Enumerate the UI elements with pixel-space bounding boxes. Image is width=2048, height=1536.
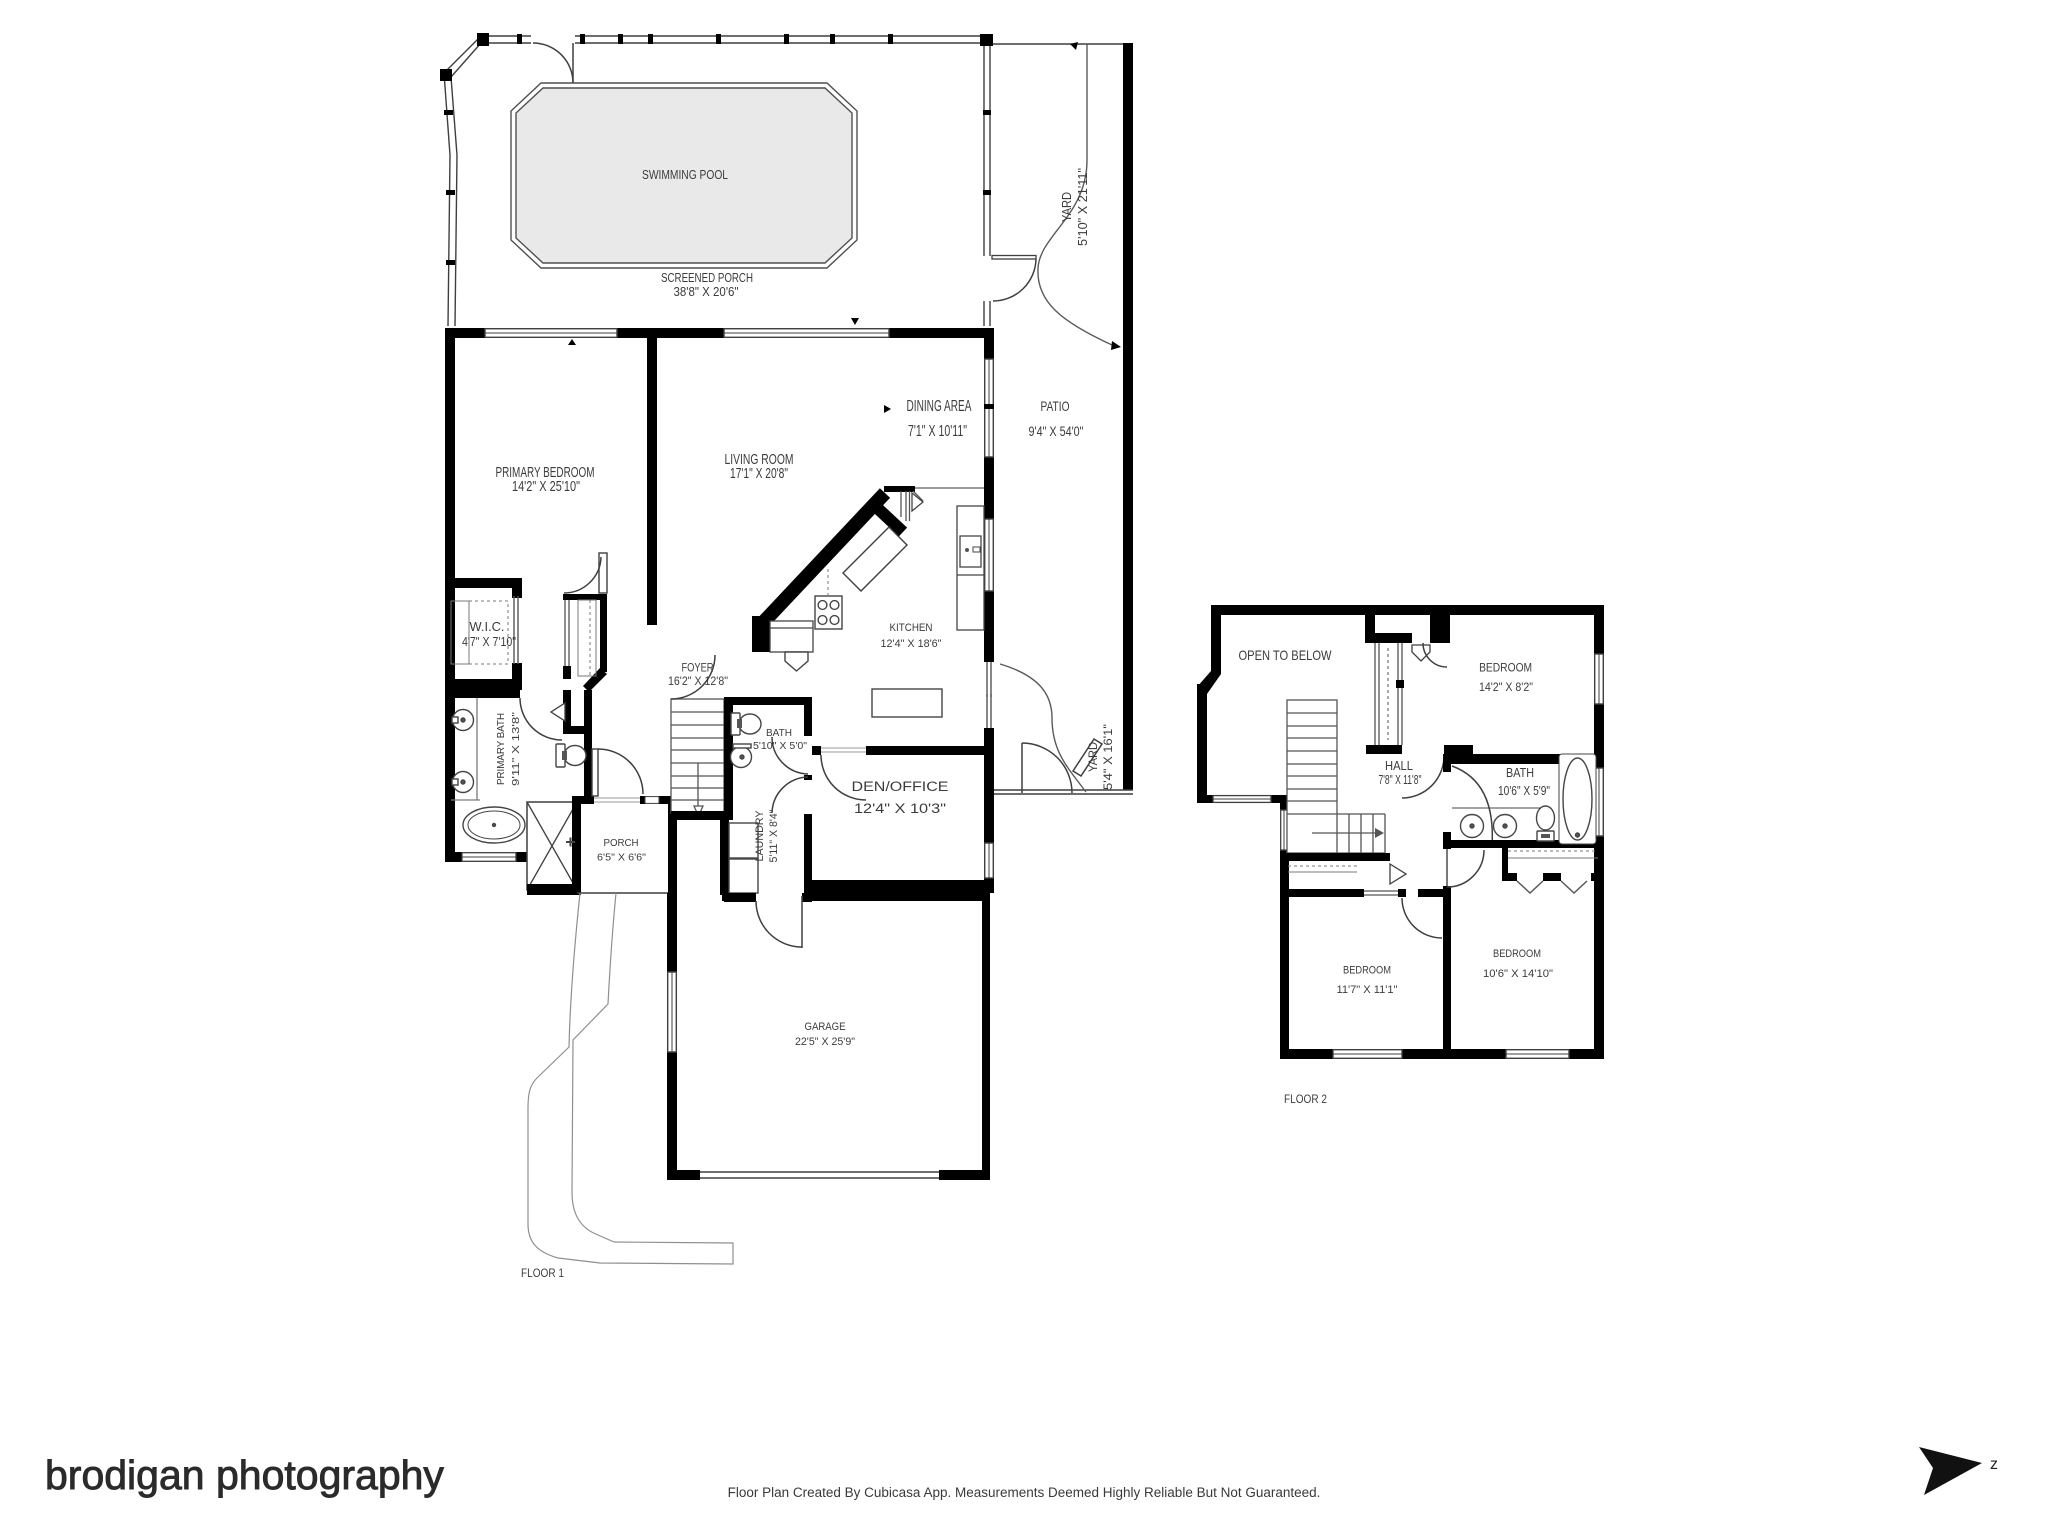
svg-text:12'4" X 18'6": 12'4" X 18'6" — [881, 638, 942, 650]
svg-text:9'11" X 13'8": 9'11" X 13'8" — [510, 712, 522, 786]
svg-text:14'2" X 25'10": 14'2" X 25'10" — [512, 479, 580, 495]
svg-text:7'1" X 10'11": 7'1" X 10'11" — [908, 423, 967, 440]
svg-text:PORCH: PORCH — [604, 837, 639, 849]
svg-text:12'4" X 10'3": 12'4" X 10'3" — [854, 801, 946, 816]
svg-text:z: z — [1990, 1456, 1998, 1473]
svg-text:GARAGE: GARAGE — [805, 1021, 846, 1033]
svg-text:LAUNDRY: LAUNDRY — [754, 810, 766, 862]
svg-text:38'8" X 20'6": 38'8" X 20'6" — [674, 285, 739, 299]
svg-text:5'10" X 5'0": 5'10" X 5'0" — [753, 741, 807, 752]
svg-text:FLOOR 1: FLOOR 1 — [521, 1266, 564, 1280]
svg-text:BATH: BATH — [1506, 766, 1534, 780]
svg-text:4'7" X 7'10": 4'7" X 7'10" — [462, 635, 516, 649]
svg-text:5'4" X 16'1": 5'4" X 16'1" — [1101, 724, 1115, 790]
svg-text:FOYER: FOYER — [682, 663, 714, 675]
svg-text:YARD: YARD — [1060, 192, 1074, 222]
svg-text:Floor Plan Created By Cubicasa: Floor Plan Created By Cubicasa App. Meas… — [728, 1485, 1321, 1500]
svg-text:10'6" X 5'9": 10'6" X 5'9" — [1498, 784, 1550, 798]
svg-text:17'1" X 20'8": 17'1" X 20'8" — [730, 465, 788, 482]
svg-text:10'6" X 14'10": 10'6" X 14'10" — [1483, 968, 1553, 980]
svg-text:DEN/OFFICE: DEN/OFFICE — [852, 779, 949, 794]
svg-text:6'5" X 6'6": 6'5" X 6'6" — [597, 852, 646, 864]
svg-text:SWIMMING POOL: SWIMMING POOL — [642, 167, 728, 182]
svg-text:OPEN TO BELOW: OPEN TO BELOW — [1239, 647, 1333, 663]
svg-text:14'2" X 8'2": 14'2" X 8'2" — [1479, 682, 1533, 694]
svg-text:9'4" X 54'0": 9'4" X 54'0" — [1029, 423, 1084, 439]
svg-text:16'2" X 12'8": 16'2" X 12'8" — [668, 676, 728, 688]
svg-text:7'8" X 11'8": 7'8" X 11'8" — [1379, 773, 1422, 787]
svg-text:22'5" X 25'9": 22'5" X 25'9" — [795, 1036, 855, 1048]
svg-text:BEDROOM: BEDROOM — [1479, 663, 1532, 675]
svg-text:PATIO: PATIO — [1041, 398, 1070, 414]
svg-text:DINING AREA: DINING AREA — [907, 398, 972, 415]
svg-text:FLOOR 2: FLOOR 2 — [1284, 1092, 1327, 1106]
svg-text:KITCHEN: KITCHEN — [890, 622, 933, 634]
svg-text:BEDROOM: BEDROOM — [1493, 948, 1541, 960]
svg-text:brodigan photography: brodigan photography — [45, 1452, 444, 1498]
svg-text:HALL: HALL — [1385, 759, 1413, 773]
svg-text:11'7" X 11'1": 11'7" X 11'1" — [1337, 984, 1398, 996]
svg-text:PRIMARY BATH: PRIMARY BATH — [495, 713, 507, 785]
svg-text:W.I.C.: W.I.C. — [470, 620, 505, 634]
svg-text:SCREENED PORCH: SCREENED PORCH — [661, 271, 753, 285]
svg-text:YARD: YARD — [1086, 742, 1100, 772]
svg-text:BEDROOM: BEDROOM — [1343, 965, 1391, 977]
svg-text:5'10" X 21'11": 5'10" X 21'11" — [1076, 168, 1090, 246]
svg-text:5'11" X 8'4": 5'11" X 8'4" — [768, 809, 780, 862]
svg-text:BATH: BATH — [766, 728, 792, 739]
